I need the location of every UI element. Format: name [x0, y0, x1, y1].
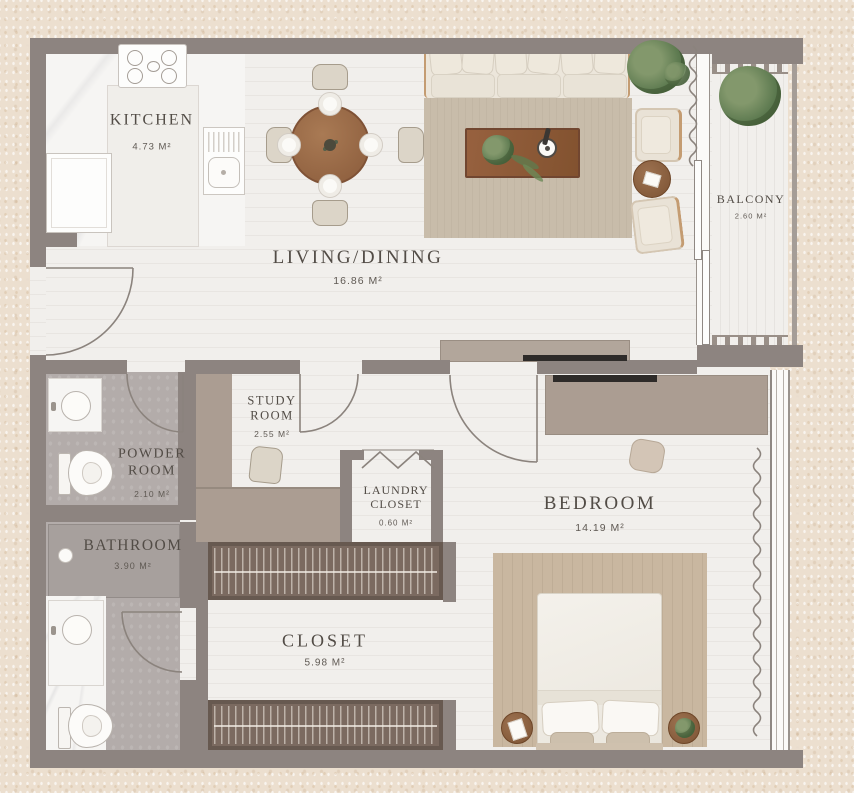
- study-door-arc: [300, 374, 358, 432]
- living-dining-label: LIVING/DINING: [273, 247, 444, 269]
- bathroom-area: 3.90 M²: [114, 561, 152, 571]
- study-room-area: 2.55 M²: [254, 429, 290, 439]
- living-dining-area: 16.86 M²: [333, 275, 382, 287]
- bathroom-label: BATHROOM: [84, 537, 183, 555]
- entrance-door-arc: [46, 268, 133, 355]
- bedroom-label: BEDROOM: [544, 493, 657, 515]
- closet-label: CLOSET: [282, 630, 368, 651]
- powder-room-area: 2.10 M²: [134, 489, 170, 499]
- bedroom-area: 14.19 M²: [575, 522, 624, 534]
- kitchen-label: KITCHEN: [110, 112, 194, 131]
- kitchen-area: 4.73 M²: [132, 142, 171, 153]
- balcony-area: 2.60 M²: [735, 212, 767, 221]
- curtain-bedroom: [754, 448, 761, 736]
- powder-room-label: POWDER ROOM: [106, 446, 198, 479]
- closet-area: 5.98 M²: [305, 658, 346, 669]
- powder-door-arc: [127, 374, 183, 432]
- laundry-closet-label: LAUNDRY CLOSET: [356, 483, 436, 511]
- study-room-label: STUDY ROOM: [244, 393, 300, 423]
- balcony-label: BALCONY: [717, 192, 786, 206]
- curtain-living: [690, 46, 697, 166]
- bedroom-door-arc: [450, 375, 537, 462]
- floor-plan: KITCHEN 4.73 M² LIVING/DINING 16.86 M² B…: [0, 0, 854, 793]
- laundry-closet-area: 0.60 M²: [379, 519, 413, 528]
- bathroom-door-arc: [122, 612, 182, 672]
- laundry-bifold-doors: [362, 452, 434, 468]
